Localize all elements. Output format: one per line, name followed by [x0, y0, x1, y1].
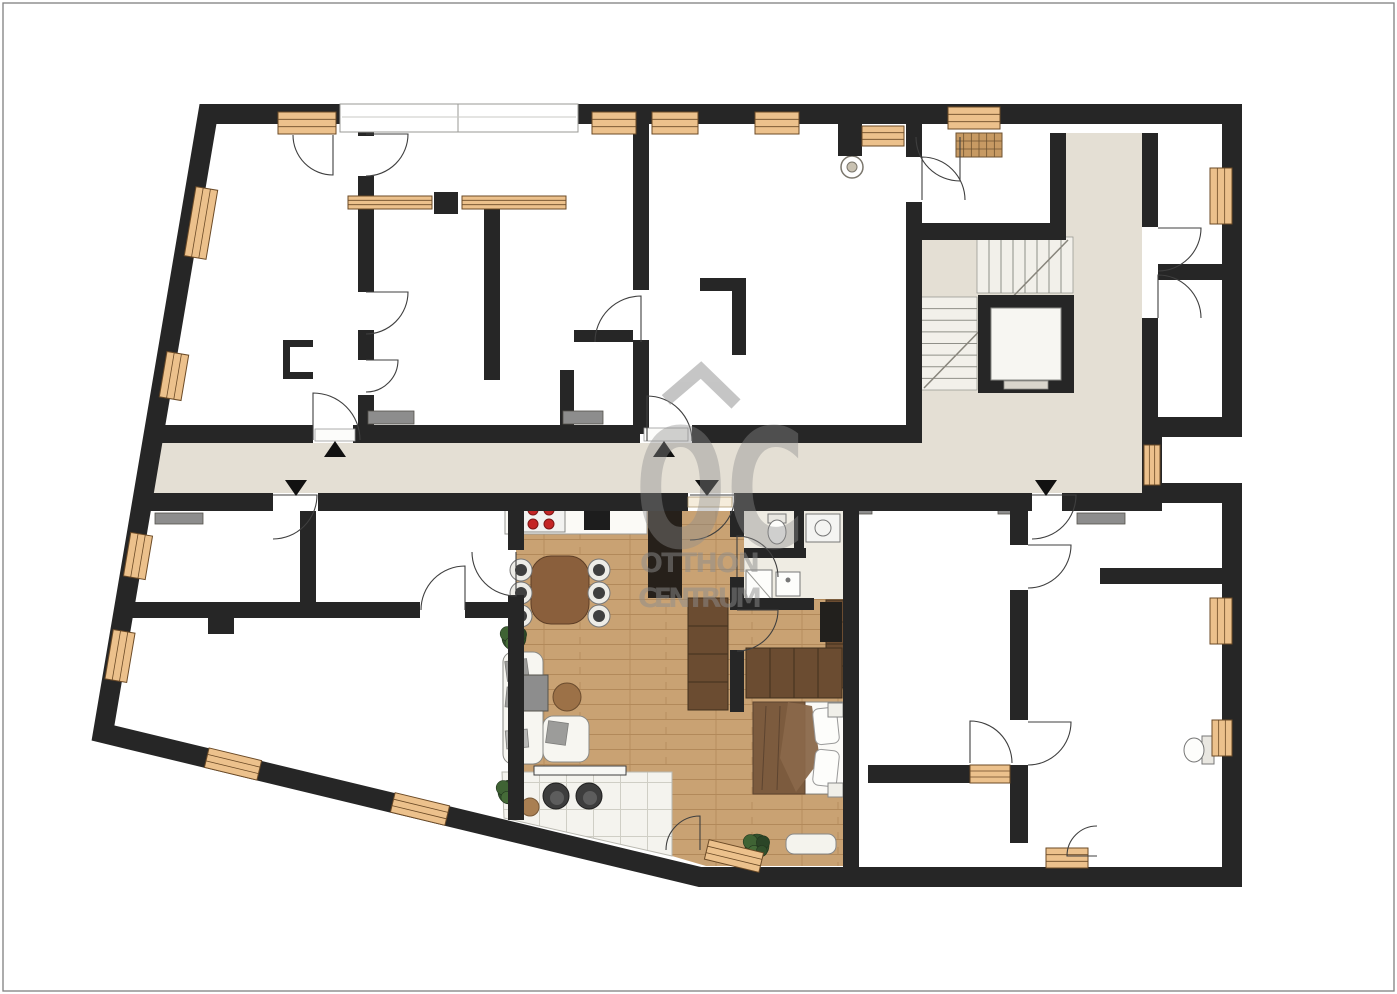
terrace-slider — [534, 766, 626, 775]
wall — [465, 602, 508, 618]
bench — [786, 834, 836, 854]
watermark-line1: OTTHON — [640, 548, 760, 579]
radiator — [368, 411, 414, 424]
nightstand — [828, 783, 843, 797]
wall — [508, 595, 524, 820]
wall — [1100, 568, 1232, 584]
window-frame — [970, 765, 1010, 783]
corridor-wall — [150, 425, 313, 443]
watermark-line2: CENTRUM — [638, 583, 762, 614]
entrance-door — [948, 107, 1000, 129]
bed-pillow — [812, 749, 840, 787]
entrance-doormat — [956, 133, 1002, 157]
window-frame — [592, 112, 636, 134]
wall — [633, 114, 649, 290]
wall — [730, 650, 744, 712]
window-frame — [755, 112, 799, 134]
glazed-band — [340, 104, 578, 132]
wall — [1158, 264, 1232, 280]
washing-machine — [806, 514, 840, 542]
window — [592, 112, 636, 134]
coffee-table — [553, 683, 581, 711]
wall — [283, 340, 290, 379]
window-frame — [948, 107, 1000, 129]
wall-pillar — [434, 192, 458, 214]
watermark: OC OTTHON CENTRUM — [635, 370, 805, 614]
window — [862, 126, 904, 146]
wall — [732, 291, 746, 355]
wall — [508, 511, 524, 550]
window-frame — [1210, 598, 1232, 644]
elevator-cab — [991, 308, 1061, 380]
wall — [300, 511, 316, 602]
elevator-door — [1004, 381, 1048, 389]
wall — [484, 196, 500, 380]
floor-plan-page: OC OTTHON CENTRUM — [0, 0, 1397, 994]
burner — [544, 519, 554, 529]
wall — [358, 176, 374, 292]
stair-lobby-floor — [1066, 133, 1142, 243]
wall — [906, 223, 1050, 240]
floor-plan: OC OTTHON CENTRUM — [0, 0, 1397, 994]
window-frame — [1212, 720, 1232, 756]
window — [652, 112, 698, 134]
window-frame — [862, 126, 904, 146]
ceiling-lamp-center — [847, 162, 857, 172]
wall — [1010, 783, 1028, 843]
window — [462, 196, 566, 209]
window-frame — [348, 196, 432, 209]
window — [1212, 720, 1232, 756]
nightstand — [828, 703, 843, 717]
utility-column — [820, 602, 842, 642]
window-frame — [278, 112, 336, 134]
wall — [700, 278, 746, 291]
window-frame — [462, 196, 566, 209]
radiator — [155, 513, 203, 524]
terrace-armchair-seat — [583, 791, 597, 805]
dining-table — [531, 556, 589, 624]
wall — [125, 602, 420, 618]
window — [278, 112, 336, 134]
corridor-wall — [140, 493, 273, 511]
wall — [868, 765, 970, 783]
wall — [1010, 511, 1028, 545]
wall — [1142, 318, 1158, 427]
window-frame — [1144, 445, 1160, 485]
corridor-wall — [353, 425, 640, 443]
window — [1210, 598, 1232, 644]
interior-window — [970, 765, 1010, 783]
dining-chair-seat — [593, 564, 605, 576]
window-frame — [1210, 168, 1232, 224]
wall — [574, 330, 633, 342]
dining-chair-seat — [515, 564, 527, 576]
wall — [1142, 133, 1158, 227]
radiator — [563, 411, 603, 424]
door-threshold — [315, 429, 355, 441]
wall — [843, 511, 859, 877]
corridor-wall — [318, 493, 688, 511]
wall — [1010, 590, 1028, 720]
terrace-armchair-seat — [550, 791, 564, 805]
burner — [528, 519, 538, 529]
window — [755, 112, 799, 134]
sofa-pillow — [546, 721, 569, 746]
wall — [1010, 765, 1028, 783]
dining-chair-seat — [593, 610, 605, 622]
window-frame — [652, 112, 698, 134]
window — [1210, 168, 1232, 224]
wall — [208, 610, 234, 634]
window — [1144, 445, 1160, 485]
dining-chair-seat — [593, 587, 605, 599]
wc-bowl — [1184, 738, 1204, 762]
wall — [1050, 133, 1066, 240]
window — [348, 196, 432, 209]
radiator — [1077, 513, 1125, 524]
